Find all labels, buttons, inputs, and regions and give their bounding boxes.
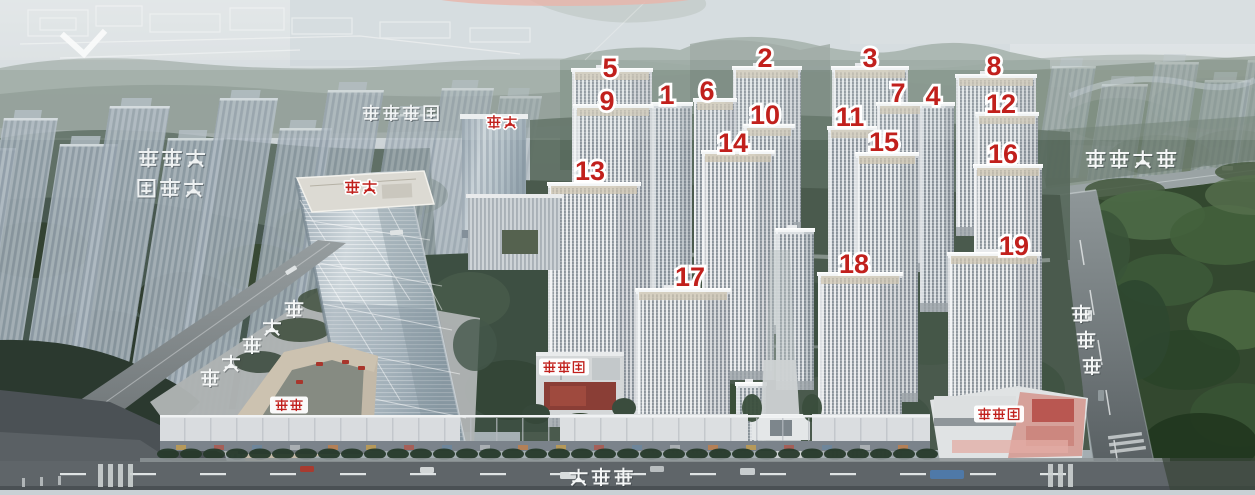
svg-text:19: 19 (999, 231, 1029, 261)
svg-text:7: 7 (890, 78, 905, 108)
svg-text:6: 6 (699, 76, 714, 106)
svg-text:9: 9 (599, 86, 614, 116)
svg-text:2: 2 (757, 43, 772, 73)
svg-text:3: 3 (862, 43, 877, 73)
svg-text:17: 17 (675, 262, 705, 292)
svg-text:8: 8 (986, 51, 1001, 81)
svg-text:4: 4 (925, 81, 940, 111)
svg-text:1: 1 (659, 80, 674, 110)
svg-text:18: 18 (839, 249, 869, 279)
svg-text:14: 14 (718, 128, 748, 158)
svg-text:11: 11 (836, 102, 865, 132)
svg-text:5: 5 (602, 53, 617, 83)
svg-text:10: 10 (750, 100, 780, 130)
svg-text:12: 12 (986, 89, 1016, 119)
svg-text:15: 15 (869, 127, 899, 157)
svg-text:13: 13 (575, 156, 605, 186)
svg-text:16: 16 (988, 139, 1018, 169)
